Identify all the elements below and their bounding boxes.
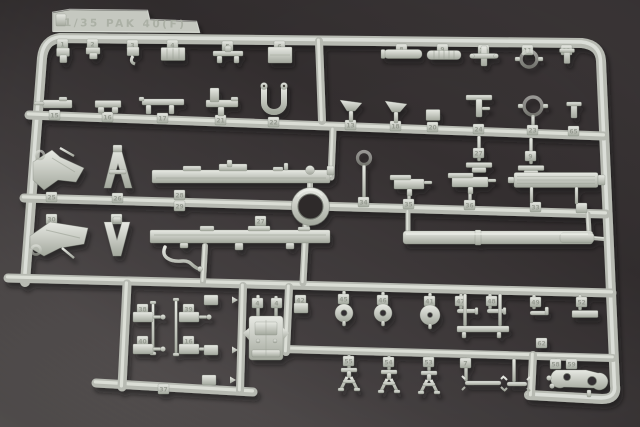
svg-text:48: 48	[487, 299, 495, 306]
svg-text:15: 15	[50, 113, 58, 120]
svg-text:22: 22	[269, 120, 277, 127]
svg-text:21: 21	[216, 118, 224, 125]
svg-text:27: 27	[256, 219, 264, 226]
svg-text:7: 7	[463, 361, 467, 368]
sprue-runner-vertical	[407, 211, 408, 231]
svg-text:62: 62	[537, 341, 545, 348]
sprue-emboss-label: 1/35 PAK 40(F)	[64, 17, 187, 31]
svg-text:54: 54	[384, 360, 392, 367]
svg-text:9: 9	[528, 154, 532, 161]
sprue-part-box: 42	[294, 295, 308, 313]
sprue-runner-vertical	[121, 283, 127, 387]
sprue-runner-vertical	[285, 286, 289, 352]
svg-text:13: 13	[346, 123, 354, 130]
svg-text:28: 28	[175, 193, 183, 200]
svg-text:25: 25	[47, 195, 55, 202]
svg-text:65: 65	[569, 129, 577, 136]
svg-text:34: 34	[359, 200, 367, 207]
svg-text:33: 33	[531, 205, 539, 212]
svg-text:41: 41	[425, 299, 433, 306]
sprue-photo-canvas: 1234568910111215161721221318202423652793…	[0, 0, 640, 427]
svg-text:37: 37	[159, 387, 167, 394]
svg-text:53: 53	[424, 360, 432, 367]
svg-text:59: 59	[567, 362, 575, 369]
svg-text:24: 24	[474, 127, 482, 134]
sprue-runner-vertical	[318, 40, 322, 121]
svg-text:27: 27	[474, 151, 482, 158]
sprue-part-barrel	[403, 230, 594, 245]
svg-text:17: 17	[158, 116, 166, 123]
sprue-part-ballknob	[306, 166, 315, 175]
svg-text:52: 52	[577, 300, 585, 307]
sprue-runner-vertical	[239, 285, 243, 391]
sprue-part-box: 20	[426, 110, 440, 133]
sprue-photo: 1234568910111215161721221318202423652793…	[0, 0, 640, 427]
svg-text:45: 45	[339, 297, 347, 304]
svg-text:23: 23	[528, 128, 536, 135]
svg-text:29: 29	[175, 204, 183, 211]
svg-text:16: 16	[103, 115, 111, 122]
svg-text:58: 58	[551, 362, 559, 369]
svg-text:18: 18	[391, 124, 399, 131]
sprue-runner-vertical	[530, 354, 533, 396]
svg-text:4: 4	[255, 301, 259, 308]
sprue-runner-vertical	[202, 245, 205, 282]
svg-text:35: 35	[404, 202, 412, 209]
svg-text:4: 4	[274, 301, 278, 308]
sprue-runner-tab: 37	[158, 384, 169, 394]
svg-text:46: 46	[378, 298, 386, 305]
svg-text:20: 20	[428, 125, 436, 132]
svg-text:49: 49	[531, 300, 539, 307]
svg-text:36: 36	[465, 203, 473, 210]
svg-text:1: 1	[60, 42, 64, 49]
sprue-runner-vertical	[587, 213, 589, 232]
sprue-ring	[292, 188, 330, 226]
svg-text:55: 55	[344, 359, 352, 366]
svg-text:26: 26	[113, 196, 121, 203]
